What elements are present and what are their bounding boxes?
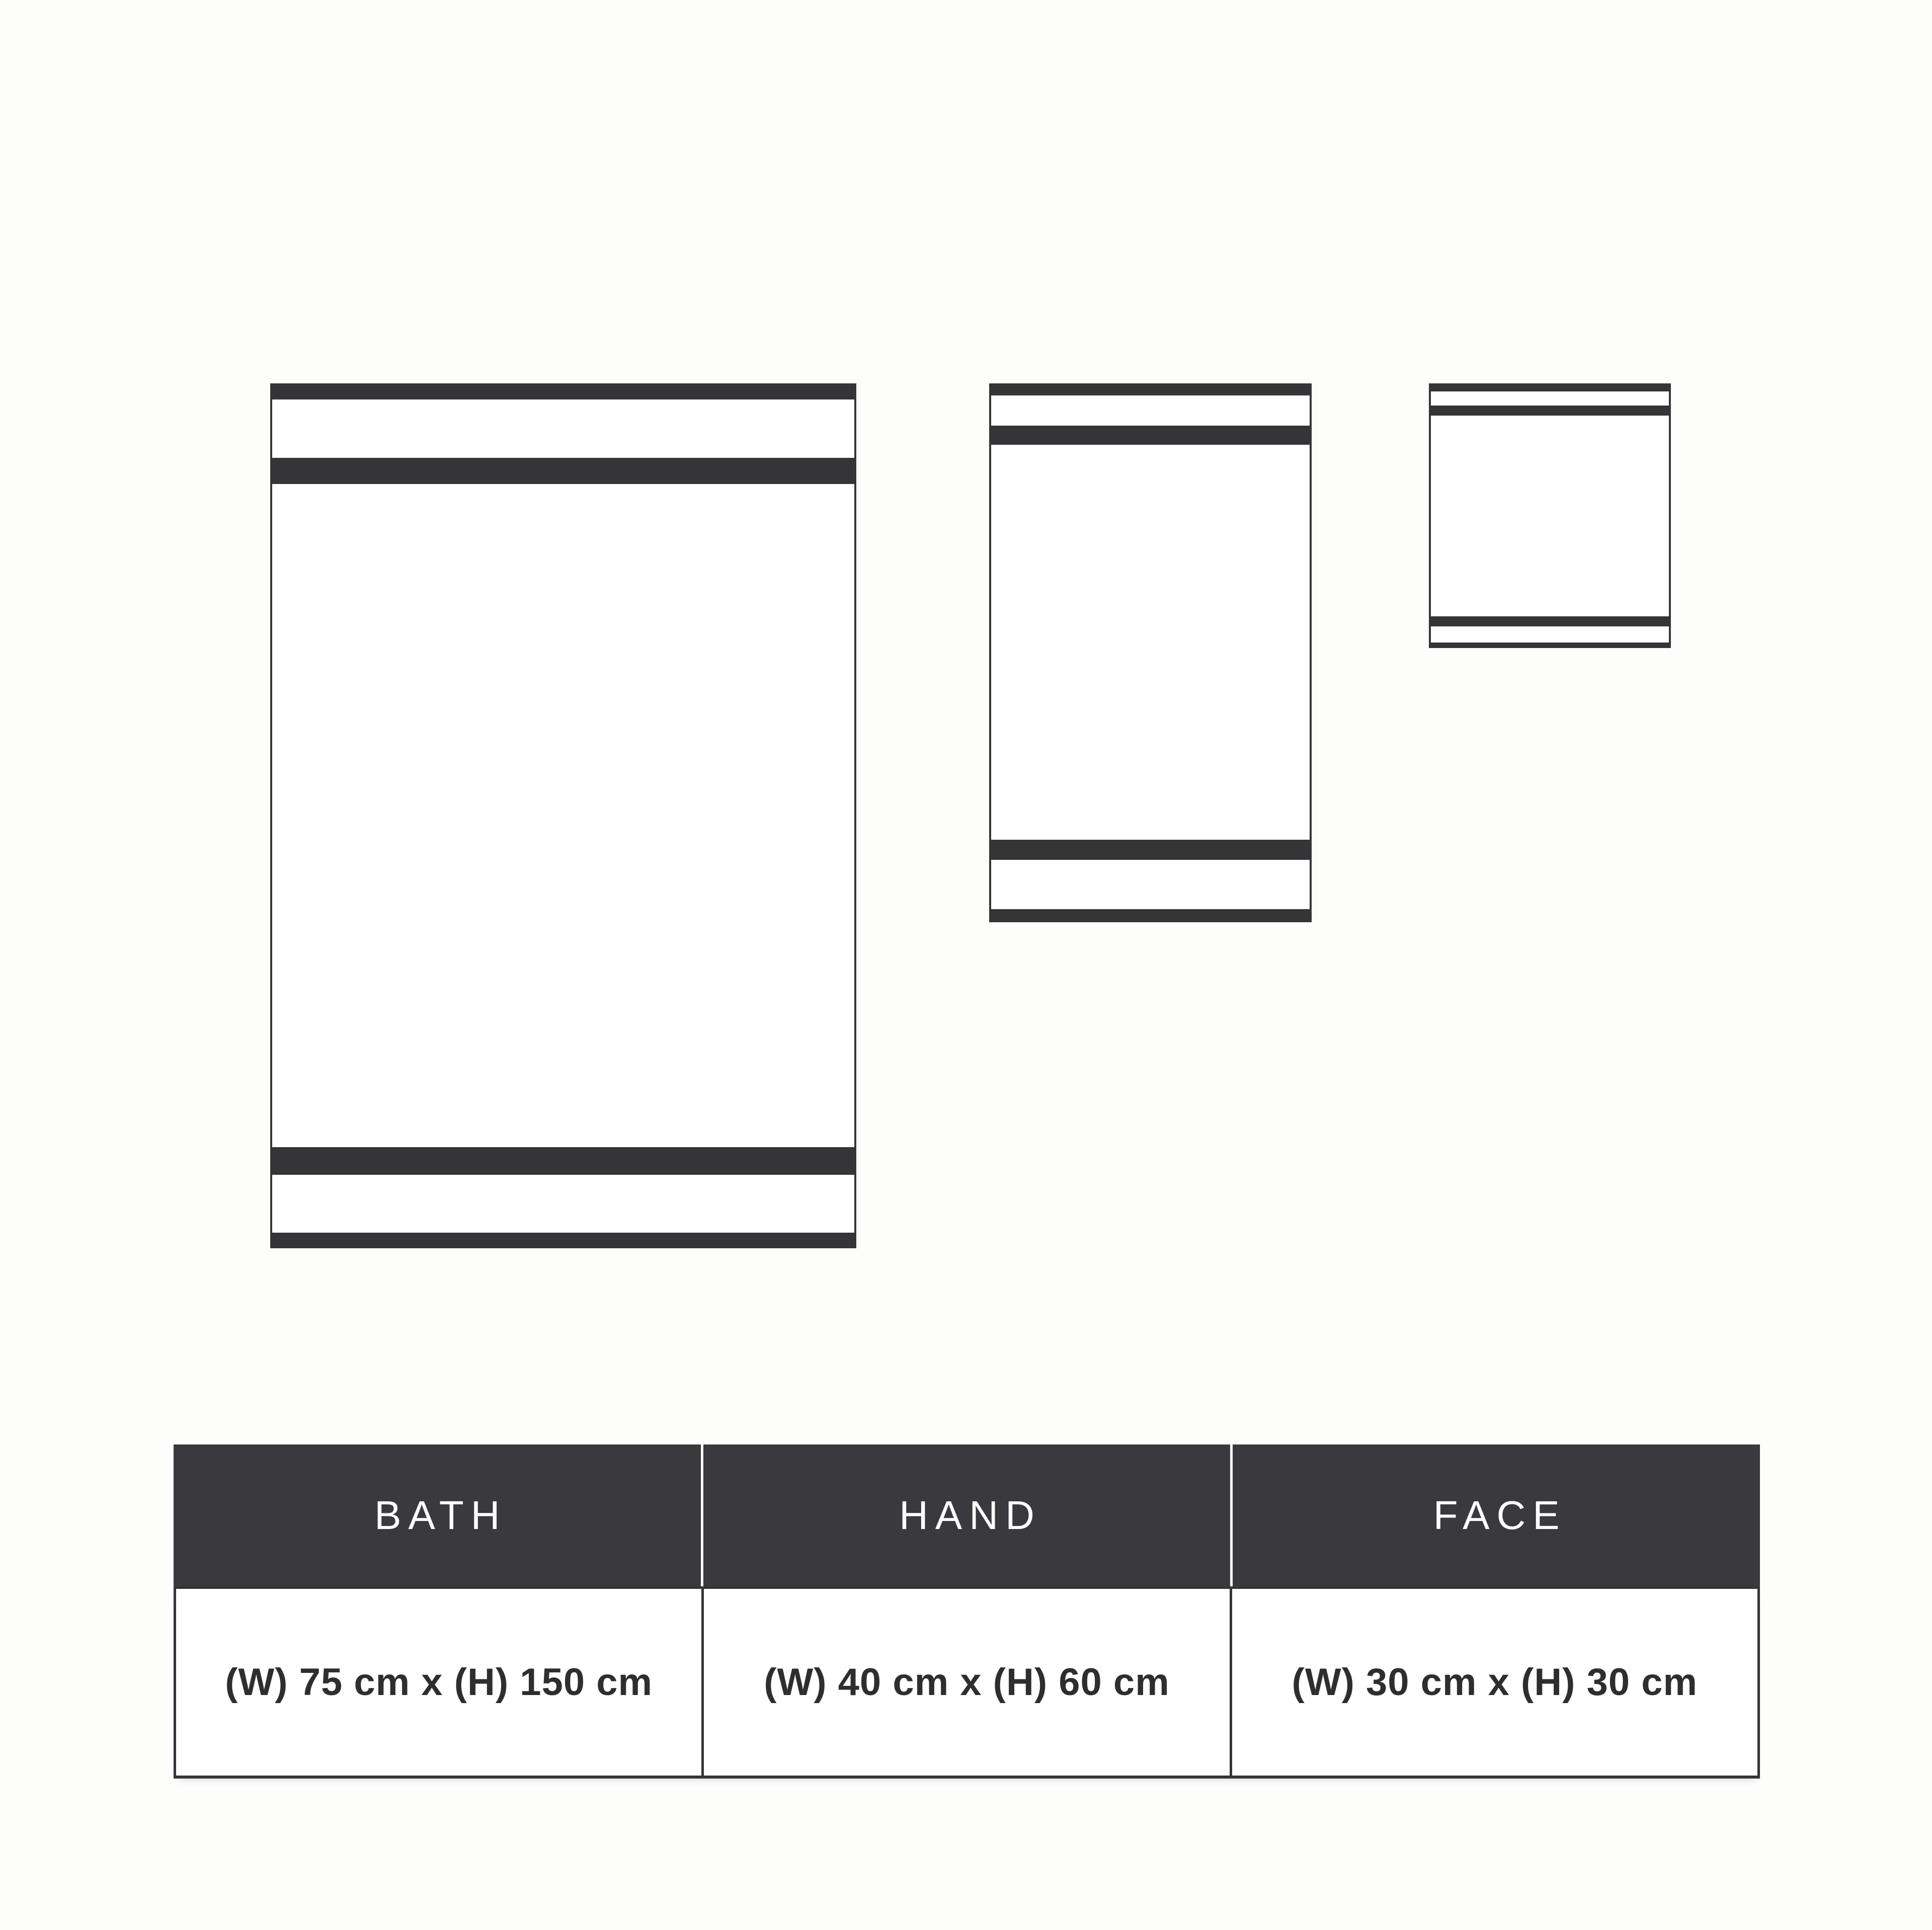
towel-accent-stripe [991,840,1310,860]
towel-hem-stripe [1431,383,1669,391]
towel-size-diagram: BATH HAND FACE (W) 75 cm x (H) 150 cm (W… [0,0,1932,1930]
towel-gap [1431,391,1669,406]
towel-accent-stripe [991,426,1310,445]
towel-gap [991,395,1310,426]
towel-body [991,445,1310,840]
size-table-body-row: (W) 75 cm x (H) 150 cm (W) 40 cm x (H) 6… [174,1586,1760,1779]
towel-hem-stripe [991,909,1310,922]
towel-accent-stripe [1431,616,1669,626]
towel-hem-stripe [272,383,854,399]
face-towel-illustration [1429,383,1671,648]
towel-hem-stripe [272,1233,854,1248]
towel-accent-stripe [272,458,854,484]
size-table-header-bath: BATH [174,1444,701,1586]
towel-hem-stripe [991,383,1310,395]
size-table-cell-face-dimensions: (W) 30 cm x (H) 30 cm [1230,1589,1757,1776]
towel-body [272,484,854,1147]
size-table-header-row: BATH HAND FACE [174,1444,1760,1586]
towel-accent-stripe [272,1147,854,1175]
bath-towel-illustration [270,383,856,1248]
size-table-header-hand: HAND [703,1444,1231,1586]
towel-gap [272,1175,854,1233]
towel-gap [272,399,854,458]
size-table-cell-hand-dimensions: (W) 40 cm x (H) 60 cm [701,1589,1229,1776]
towel-body [1431,416,1669,616]
towel-gap [1431,626,1669,642]
size-table-cell-bath-dimensions: (W) 75 cm x (H) 150 cm [176,1589,701,1776]
hand-towel-illustration [989,383,1312,922]
towel-gap [991,860,1310,909]
size-table-header-face: FACE [1233,1444,1760,1586]
towel-hem-stripe [1431,642,1669,648]
size-table: BATH HAND FACE (W) 75 cm x (H) 150 cm (W… [174,1444,1760,1779]
towel-accent-stripe [1431,406,1669,416]
